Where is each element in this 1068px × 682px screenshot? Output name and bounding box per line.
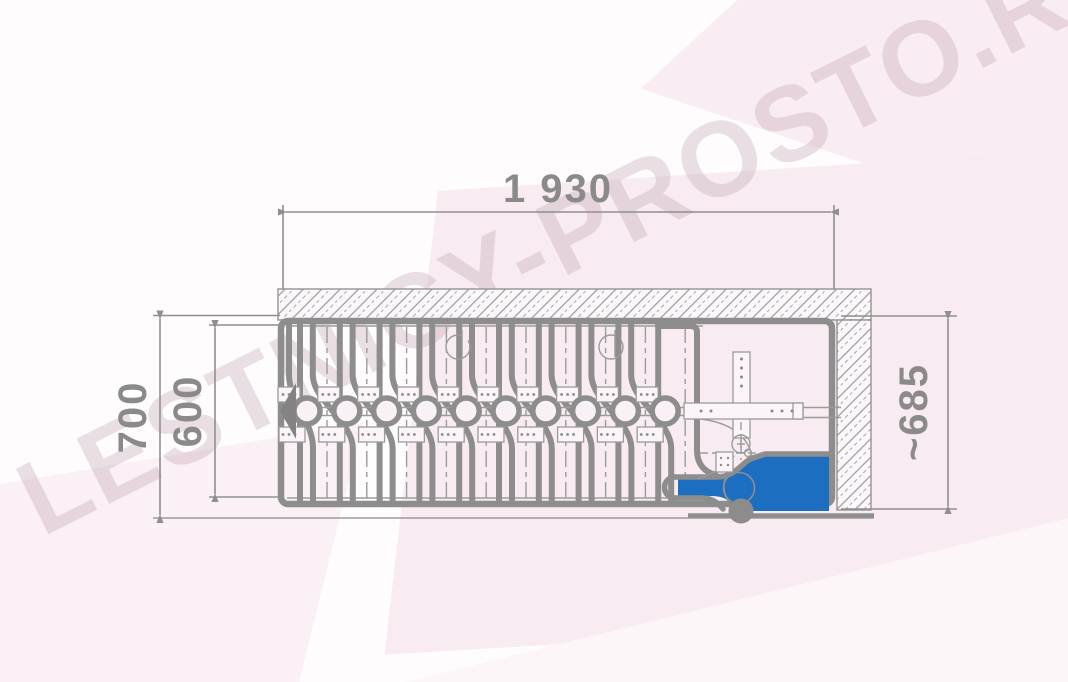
dim-label-left-outer: 700 bbox=[111, 381, 155, 454]
dimension-top-width: 1 930 bbox=[283, 167, 834, 289]
pivot-knob bbox=[729, 499, 754, 524]
dim-label-left-inner: 600 bbox=[166, 375, 210, 448]
dim-label-right: ~685 bbox=[892, 363, 936, 461]
hinge-plates bbox=[278, 387, 678, 442]
technical-drawing: 1 930 700 600 ~685 bbox=[0, 0, 1068, 682]
wall-hatch-right bbox=[837, 320, 871, 510]
page: { "watermark": { "text": "LESTNICY-PROST… bbox=[0, 0, 1068, 682]
dimension-left-inner: 600 bbox=[166, 325, 282, 497]
wall-hatch-top bbox=[278, 289, 871, 320]
dim-label-top: 1 930 bbox=[503, 167, 613, 211]
